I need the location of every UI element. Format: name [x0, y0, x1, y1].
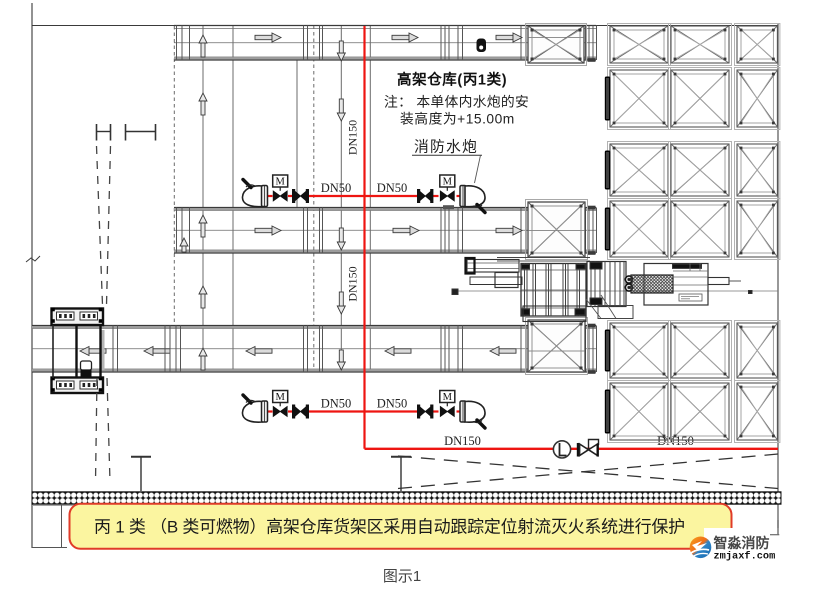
svg-text:智淼消防: 智淼消防	[713, 535, 770, 551]
svg-text:DN150: DN150	[346, 266, 360, 301]
svg-text:装高度为+15.00m: 装高度为+15.00m	[400, 111, 515, 127]
svg-text:M: M	[443, 177, 453, 188]
svg-text:DN50: DN50	[377, 181, 408, 195]
svg-text:DN50: DN50	[377, 397, 408, 411]
svg-text:DN150: DN150	[346, 120, 360, 155]
svg-text:M: M	[443, 392, 453, 403]
svg-text:消防水炮: 消防水炮	[414, 139, 478, 156]
svg-text:图示1: 图示1	[383, 568, 421, 585]
svg-text:M: M	[276, 177, 286, 188]
svg-text:zmjaxf.com: zmjaxf.com	[714, 551, 776, 563]
svg-text:DN50: DN50	[321, 181, 352, 195]
svg-text:高架仓库(丙1类): 高架仓库(丙1类)	[397, 71, 507, 89]
svg-text:DN150: DN150	[444, 434, 481, 448]
svg-text:DN50: DN50	[321, 397, 352, 411]
svg-text:注： 本单体内水炮的安: 注： 本单体内水炮的安	[384, 95, 529, 110]
svg-text:M: M	[276, 392, 286, 403]
svg-text:丙 1 类 （B 类可燃物）高架仓库货架区采用自动跟踪定位射: 丙 1 类 （B 类可燃物）高架仓库货架区采用自动跟踪定位射流灭火系统进行保护	[94, 518, 685, 537]
